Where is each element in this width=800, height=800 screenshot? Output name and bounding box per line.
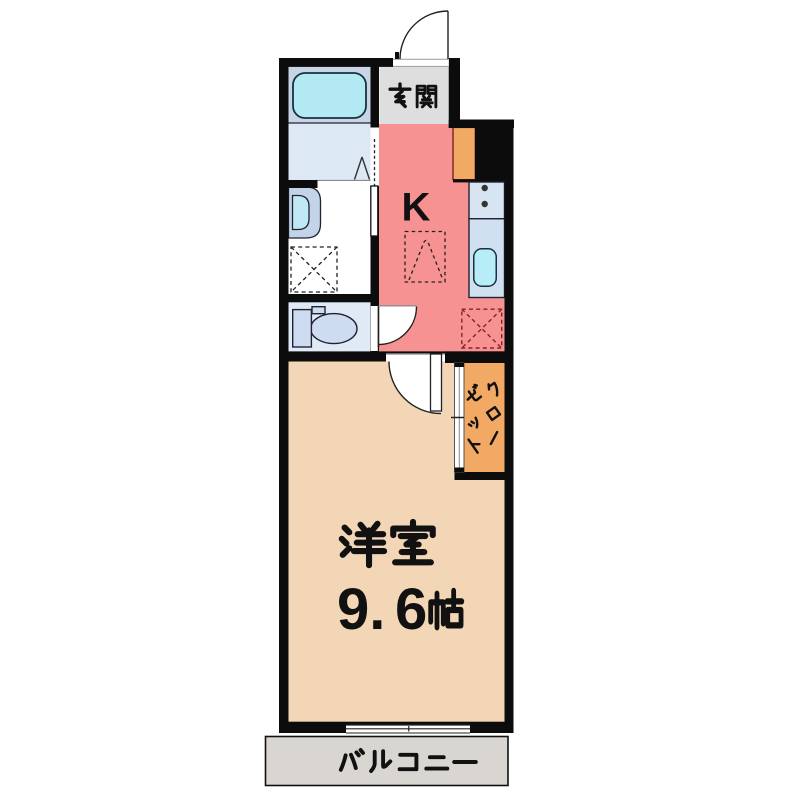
svg-text:6: 6	[395, 577, 427, 642]
svg-text:9.: 9.	[337, 577, 385, 642]
svg-text:K: K	[402, 186, 431, 230]
